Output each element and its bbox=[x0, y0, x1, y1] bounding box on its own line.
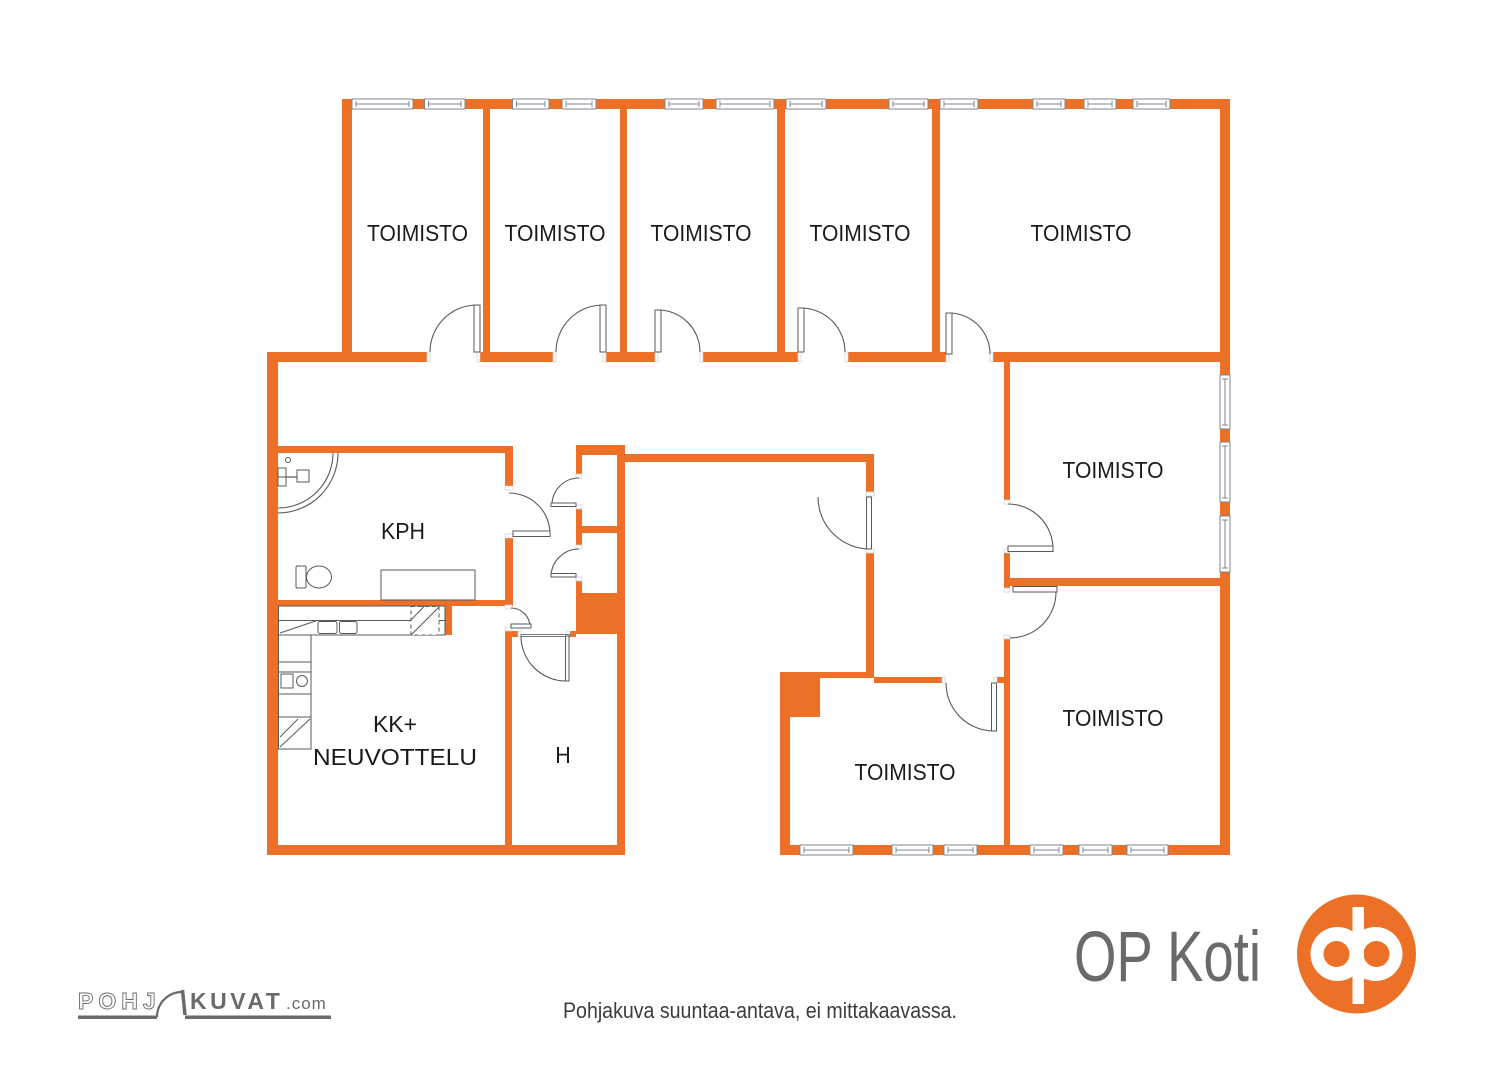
svg-text:H: H bbox=[555, 742, 571, 768]
svg-text:TOIMISTO: TOIMISTO bbox=[855, 759, 956, 785]
svg-text:KK+: KK+ bbox=[373, 711, 417, 737]
svg-text:TOIMISTO: TOIMISTO bbox=[367, 220, 468, 246]
svg-text:.com: .com bbox=[286, 994, 327, 1013]
svg-text:POHJ: POHJ bbox=[78, 988, 161, 1014]
svg-text:NEUVOTTELU: NEUVOTTELU bbox=[313, 744, 477, 770]
svg-text:OP Koti: OP Koti bbox=[1074, 918, 1261, 997]
svg-text:TOIMISTO: TOIMISTO bbox=[505, 220, 606, 246]
svg-text:TOIMISTO: TOIMISTO bbox=[651, 220, 752, 246]
svg-text:TOIMISTO: TOIMISTO bbox=[1063, 705, 1164, 731]
svg-text:Pohjakuva suuntaa-antava, ei m: Pohjakuva suuntaa-antava, ei mittakaavas… bbox=[563, 998, 957, 1023]
svg-text:KUVAT: KUVAT bbox=[190, 988, 283, 1014]
svg-text:TOIMISTO: TOIMISTO bbox=[1031, 220, 1132, 246]
svg-text:TOIMISTO: TOIMISTO bbox=[1063, 457, 1164, 483]
svg-text:KPH: KPH bbox=[381, 518, 425, 544]
svg-text:TOIMISTO: TOIMISTO bbox=[810, 220, 911, 246]
